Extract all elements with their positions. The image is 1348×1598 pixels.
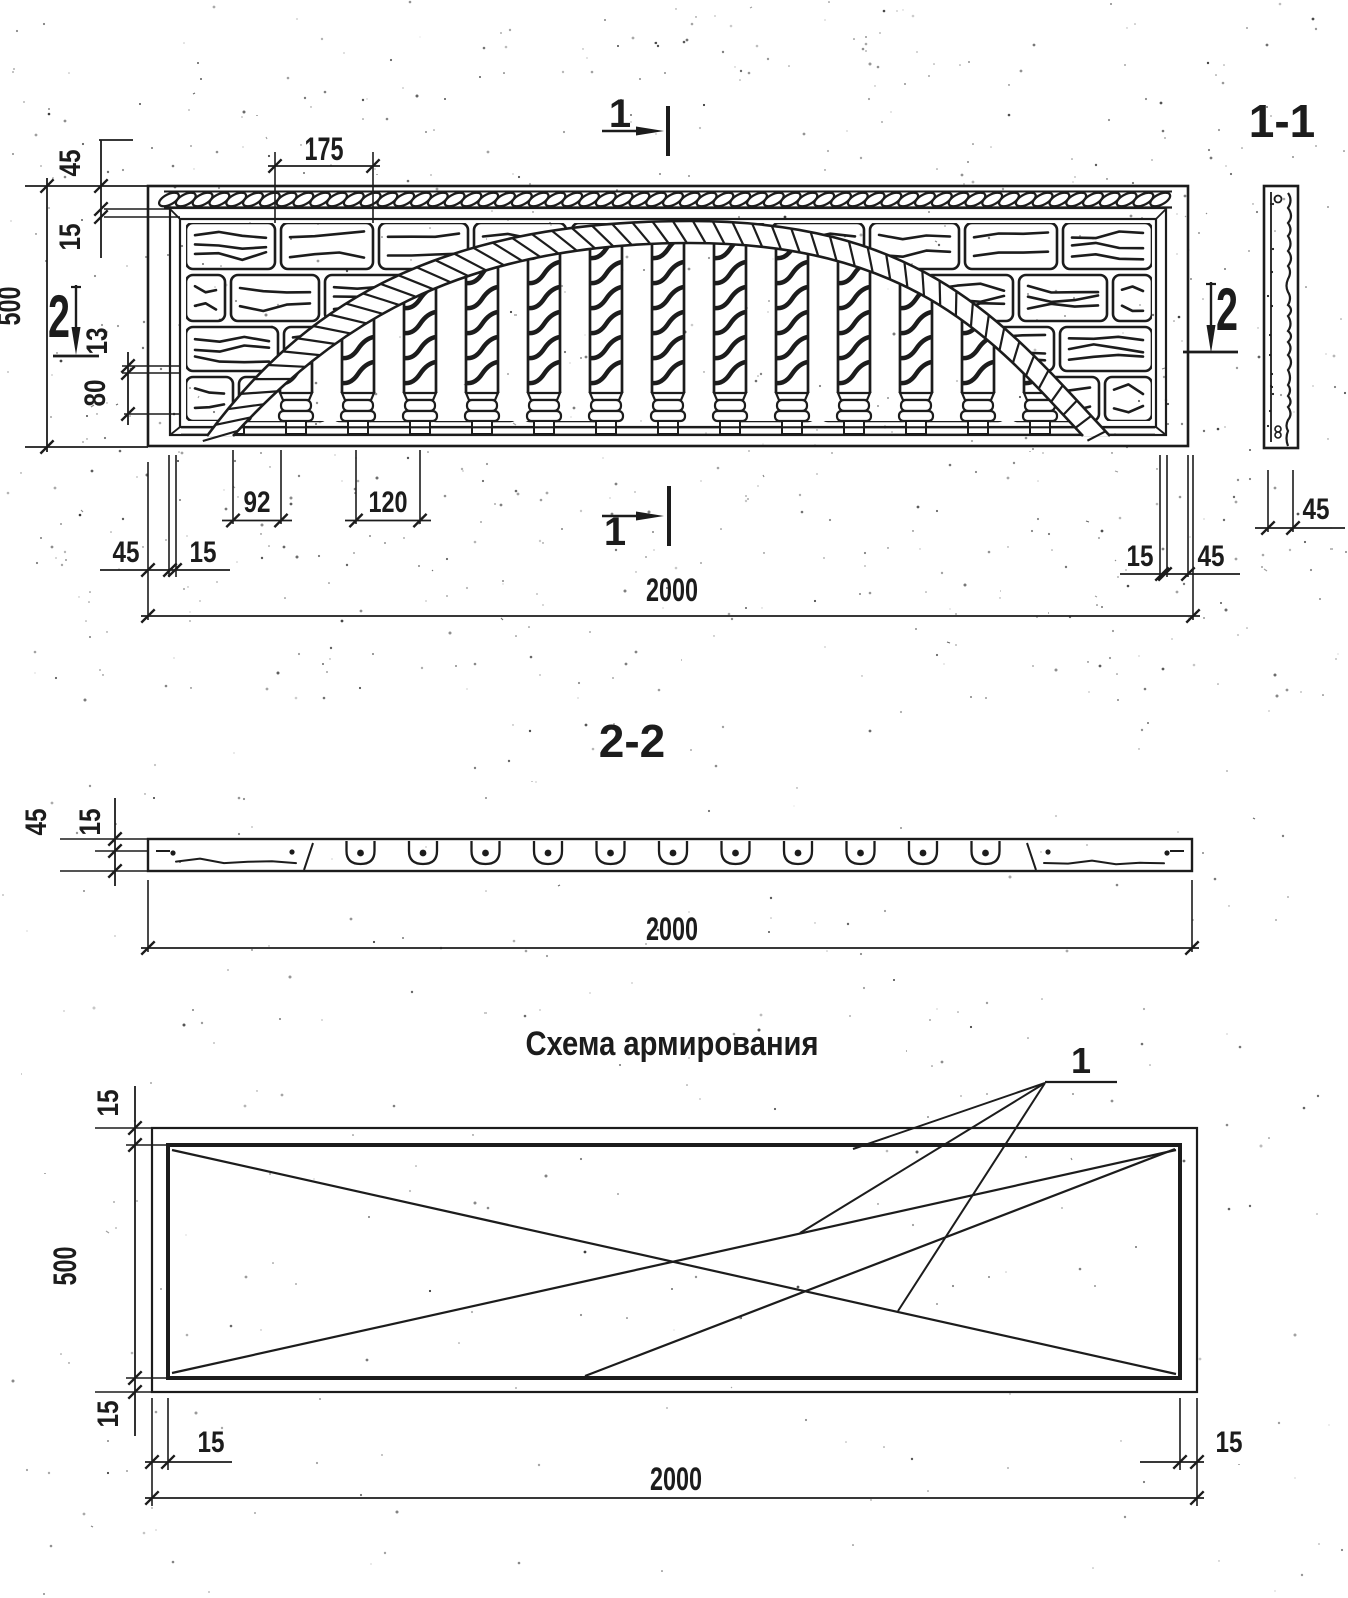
svg-text:80: 80 bbox=[79, 380, 112, 407]
svg-text:2000: 2000 bbox=[646, 572, 698, 608]
svg-text:45: 45 bbox=[54, 150, 87, 177]
svg-text:2000: 2000 bbox=[650, 1461, 702, 1497]
svg-text:92: 92 bbox=[244, 486, 271, 519]
svg-text:15: 15 bbox=[92, 1401, 125, 1428]
svg-text:13: 13 bbox=[81, 328, 114, 355]
svg-text:1: 1 bbox=[1071, 1040, 1091, 1081]
svg-text:45: 45 bbox=[113, 536, 140, 569]
svg-text:1-1: 1-1 bbox=[1249, 95, 1315, 147]
svg-text:45: 45 bbox=[1303, 493, 1330, 526]
svg-text:15: 15 bbox=[198, 1426, 225, 1459]
svg-text:15: 15 bbox=[54, 224, 87, 251]
svg-text:15: 15 bbox=[190, 536, 217, 569]
svg-text:2: 2 bbox=[1216, 276, 1238, 343]
svg-text:Схема армирования: Схема армирования bbox=[526, 1025, 819, 1063]
svg-text:120: 120 bbox=[369, 486, 408, 519]
svg-text:2: 2 bbox=[48, 283, 70, 350]
svg-text:45: 45 bbox=[20, 809, 53, 836]
svg-text:2000: 2000 bbox=[646, 911, 698, 947]
svg-text:175: 175 bbox=[305, 131, 344, 167]
svg-text:15: 15 bbox=[74, 809, 107, 836]
svg-text:15: 15 bbox=[1127, 540, 1154, 573]
svg-text:15: 15 bbox=[1216, 1426, 1243, 1459]
svg-text:500: 500 bbox=[0, 287, 27, 326]
svg-text:45: 45 bbox=[1198, 540, 1225, 573]
svg-text:1: 1 bbox=[609, 92, 631, 136]
svg-text:500: 500 bbox=[47, 1247, 83, 1286]
svg-text:2-2: 2-2 bbox=[599, 715, 665, 767]
svg-text:15: 15 bbox=[92, 1090, 125, 1117]
